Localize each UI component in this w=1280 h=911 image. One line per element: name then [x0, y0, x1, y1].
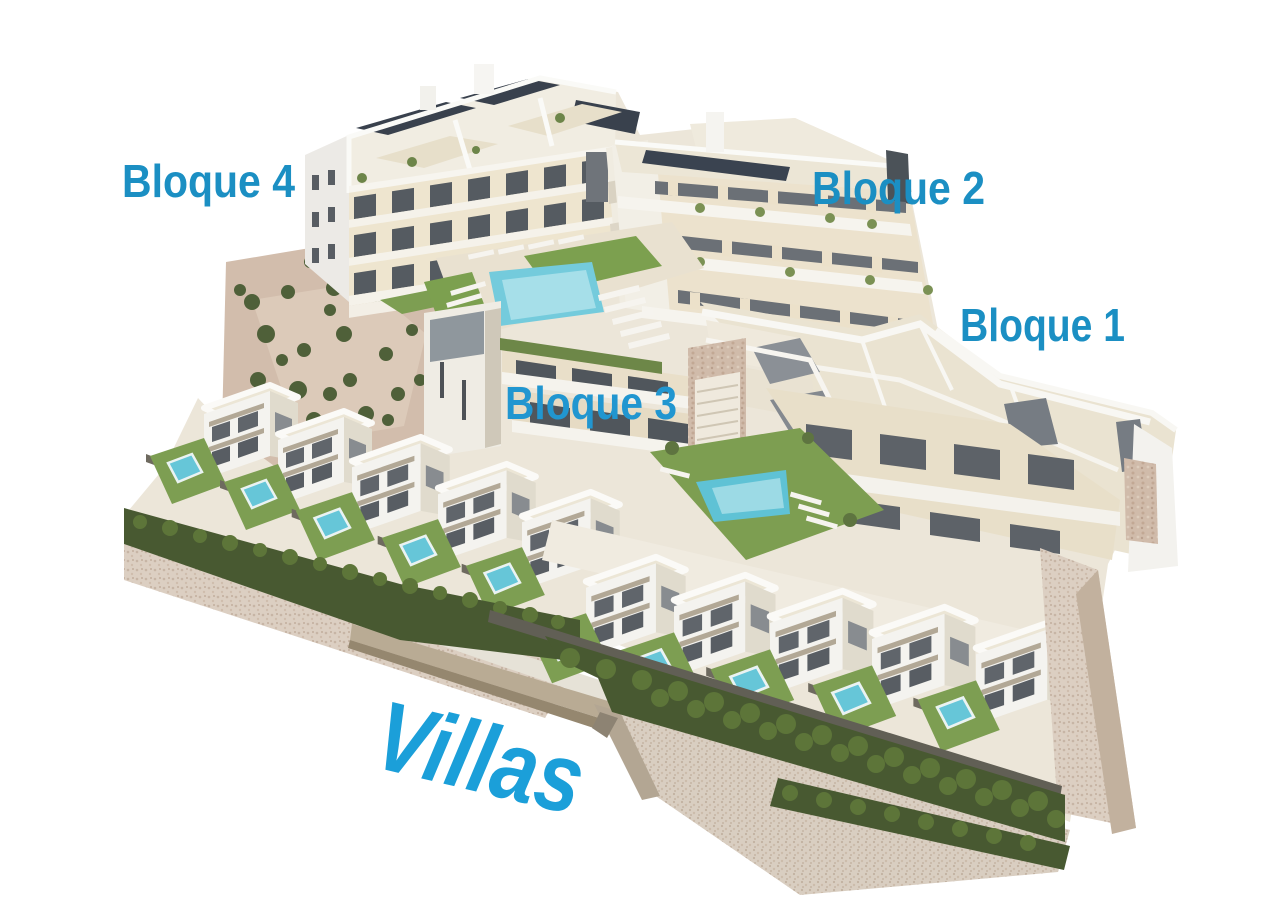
svg-text:Bloque 4: Bloque 4 [122, 155, 295, 207]
svg-text:Bloque 3: Bloque 3 [505, 377, 677, 429]
svg-text:Bloque 1: Bloque 1 [960, 299, 1125, 351]
svg-text:Bloque 2: Bloque 2 [812, 162, 985, 214]
